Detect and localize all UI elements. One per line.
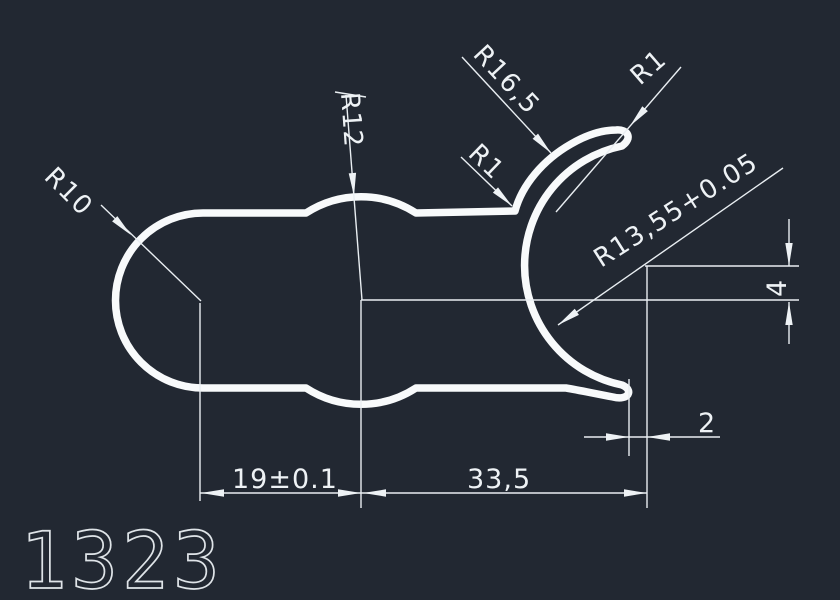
dim-2-text: 2 (698, 408, 716, 439)
part-number-label: 1323 (20, 517, 224, 600)
dim-2-arrow-left (606, 433, 629, 440)
dim-r16-5[interactable]: R16,5 (462, 39, 554, 155)
dim-2-arrow-right (647, 433, 670, 440)
r16-5-label: R16,5 (467, 39, 546, 121)
dim-19[interactable]: 19±0.1 (200, 464, 362, 497)
profile-outline[interactable] (116, 130, 629, 404)
dim-r13-55[interactable]: R13,55+0.05 (556, 147, 783, 328)
dim-33-5-arrow-right (624, 489, 647, 496)
r10-label: R10 (38, 162, 99, 223)
r1-corner-arrowhead (493, 187, 515, 208)
dim-4[interactable]: 4 (762, 219, 793, 344)
dim-4-arrow-down (785, 243, 792, 266)
dim-33-5[interactable]: 33,5 (362, 464, 647, 497)
dim-4-arrow-up (785, 302, 792, 325)
r10-arrowhead (112, 216, 133, 237)
dim-33-5-arrow-left (363, 489, 386, 496)
r12-label: R12 (334, 91, 368, 149)
dim-r1-corner[interactable]: R1 (461, 138, 515, 208)
r13-55-arrowhead (556, 309, 579, 328)
dim-4-text: 4 (762, 279, 793, 297)
dim-19-text: 19±0.1 (232, 464, 338, 495)
cad-canvas[interactable]: R10 R12 R16,5 R1 R1 R13,55+0.05 19±0.1 (0, 0, 840, 600)
dim-19-arrow-right (338, 489, 361, 496)
dim-2[interactable]: 2 (584, 379, 720, 456)
dim-19-arrow-left (201, 489, 224, 496)
dim-33-5-text: 33,5 (467, 464, 531, 495)
r1-corner-label: R1 (462, 138, 510, 186)
drawing-viewport[interactable]: R10 R12 R16,5 R1 R1 R13,55+0.05 19±0.1 (0, 0, 840, 600)
r13-55-label: R13,55+0.05 (589, 147, 764, 274)
